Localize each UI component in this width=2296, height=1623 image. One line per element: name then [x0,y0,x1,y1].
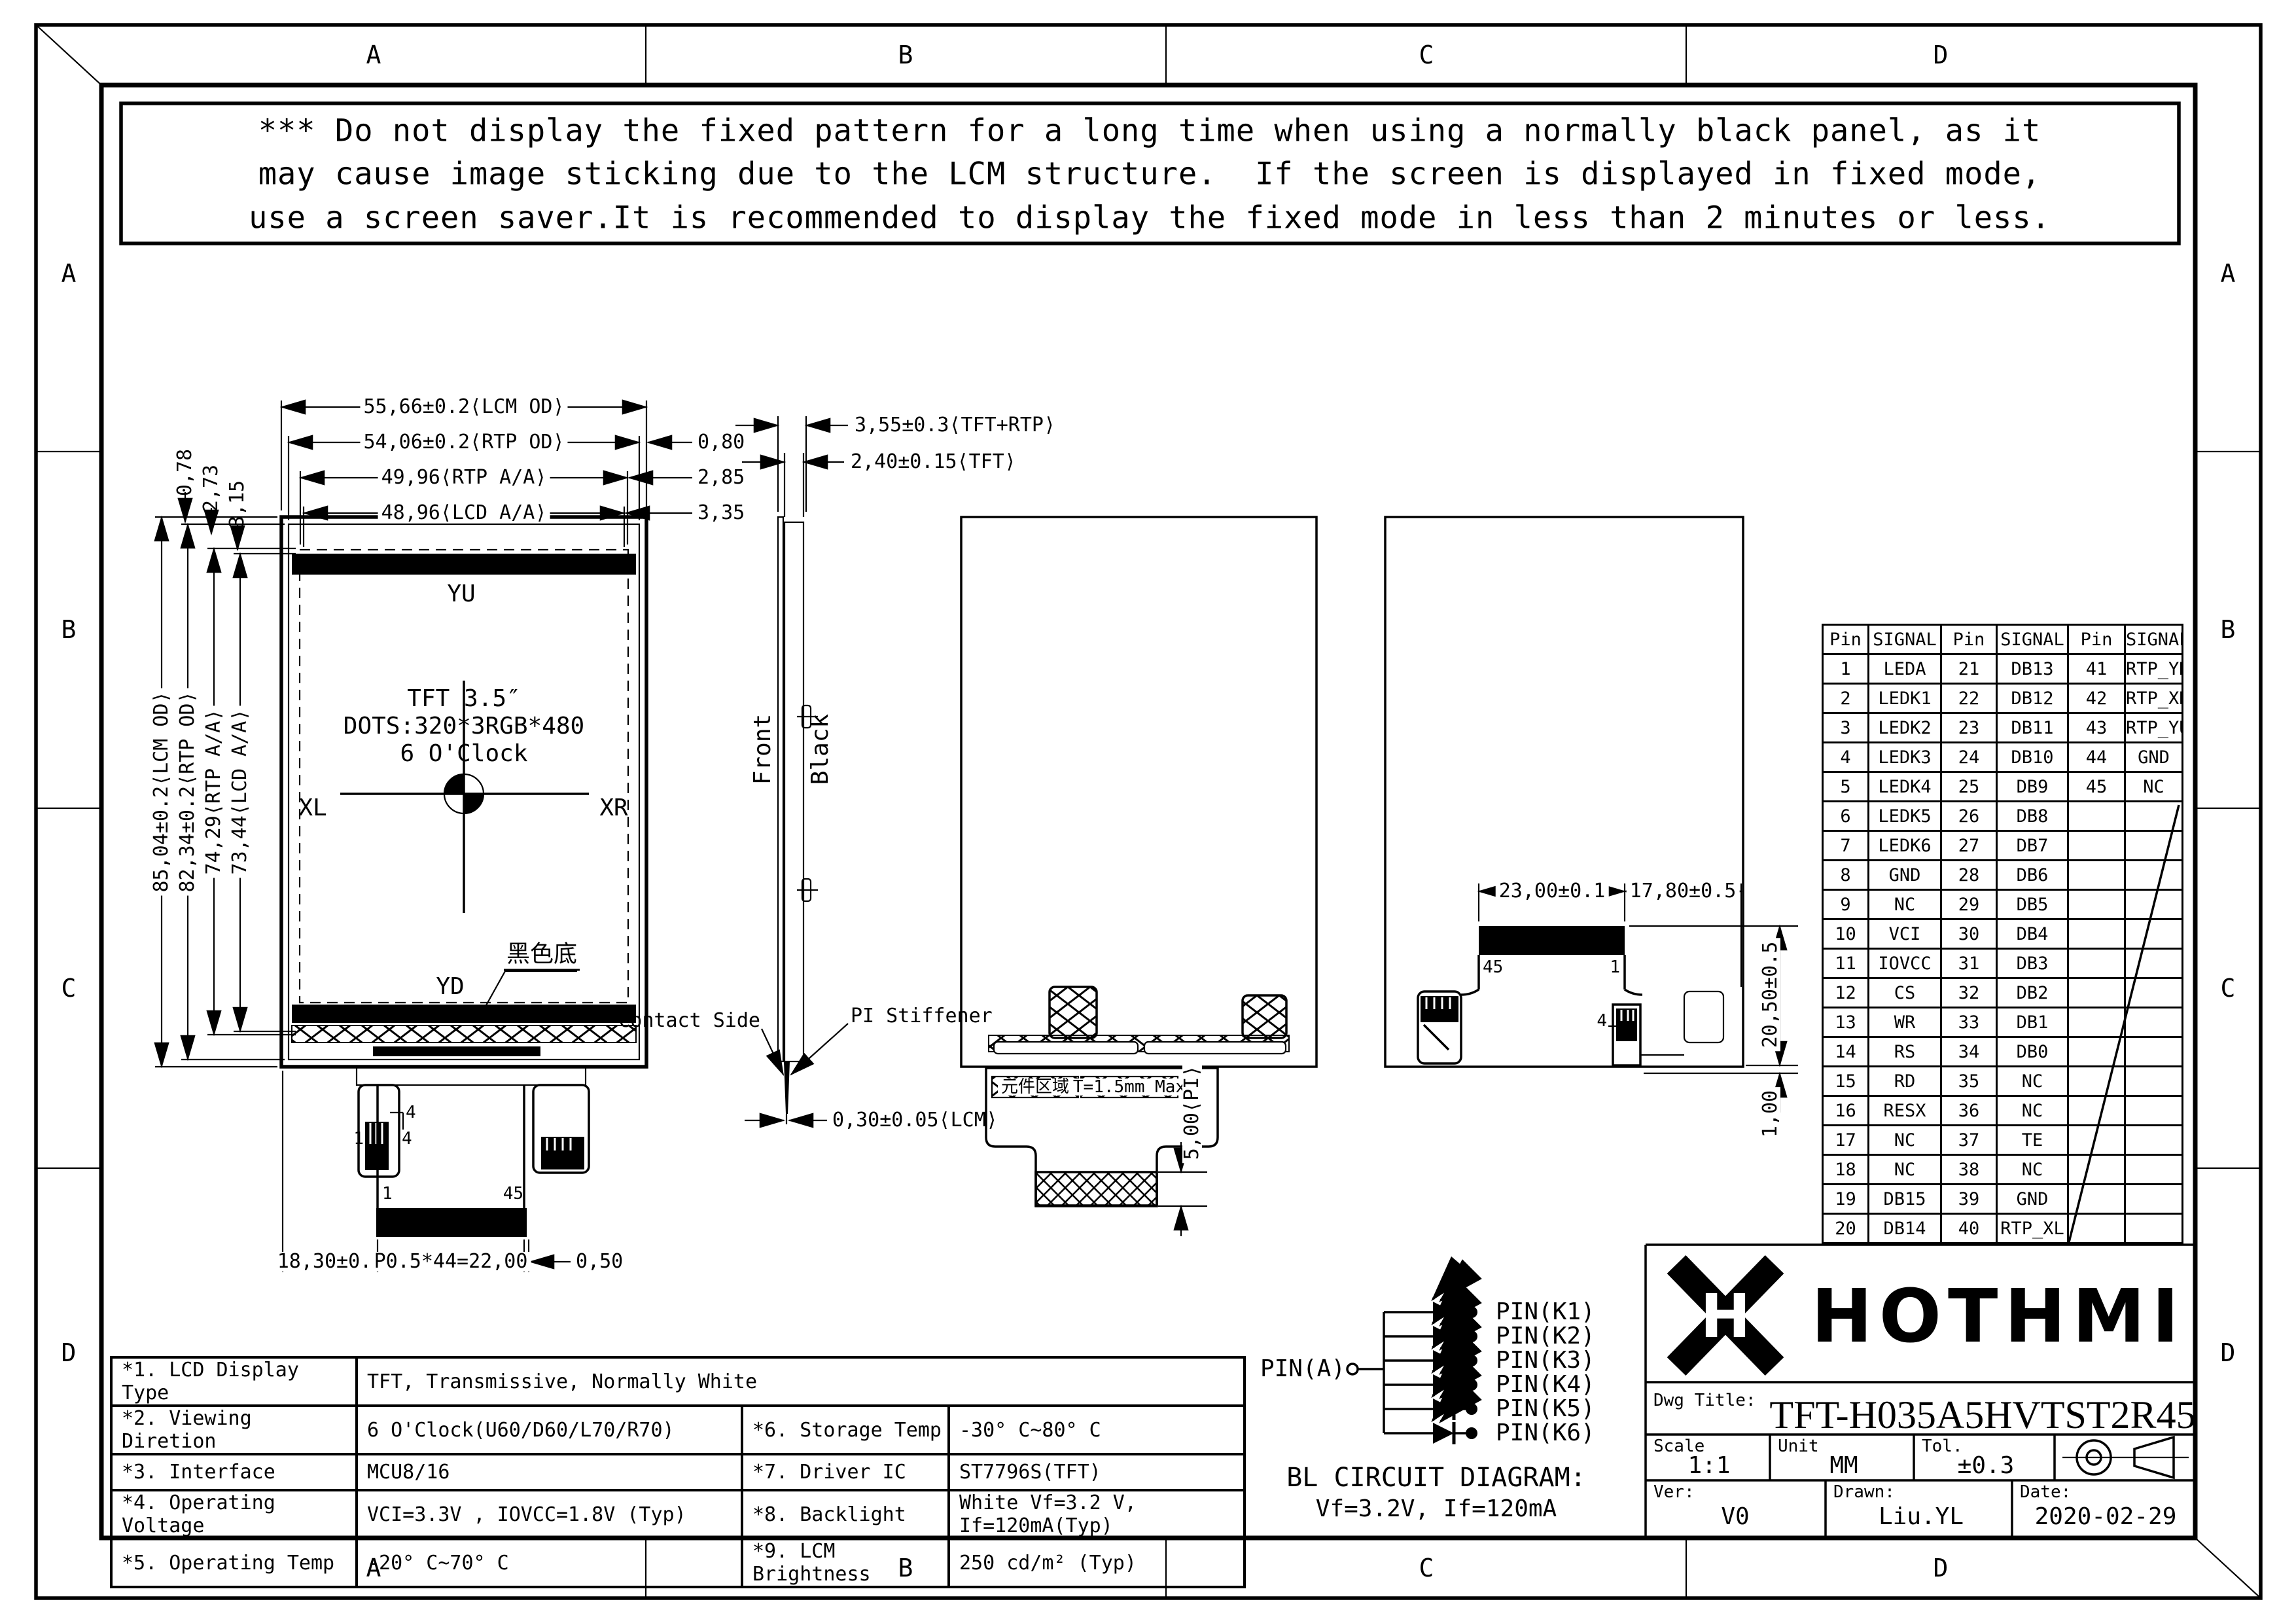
pin-cell: 36 [1941,1096,1997,1126]
pin-table-row: 4LEDK324DB1044GND [1823,743,2183,772]
signal-cell: DB3 [1997,949,2068,978]
unit-label: Unit [1778,1438,1819,1455]
pin-cell: 45 [2068,772,2125,802]
pin-cell: 23 [1941,713,1997,743]
pi-stiffener-label: PI Stiffener [851,1007,993,1026]
signal-cell [2125,890,2183,919]
signal-cell [2125,802,2183,831]
signal-cell [2125,1126,2183,1155]
spec-value: White Vf=3.2 V, If=120mA(Typ) [949,1490,1245,1539]
pin-cell: 35 [1941,1067,1997,1096]
ver-value: V0 [1721,1505,1749,1529]
signal-cell: LEDK1 [1869,684,1941,713]
spec-value: VCI=3.3V , IOVCC=1.8V (Typ) [357,1490,742,1539]
back-pin45-label: 45 [1483,959,1503,976]
signal-cell: DB12 [1997,684,2068,713]
pin-cell: 27 [1941,831,1997,861]
pin-cell [2068,1185,2125,1214]
spec-value: -30° C~80° C [949,1406,1245,1454]
pin-cell [2068,1067,2125,1096]
pin-table-row: 13WR33DB1 [1823,1008,2183,1037]
pin-cell: 38 [1941,1155,1997,1185]
zone-row-a-left: A [62,261,77,286]
spec-label: *2. Viewing Diretion [111,1406,357,1454]
pin-cell: 22 [1941,684,1997,713]
date-value: 2020-02-29 [2035,1505,2177,1529]
dim-offset-right-1: 0,80 [698,433,745,452]
dim-fpc-thickness: 0,30±0.05⟨LCM⟩ [832,1111,998,1130]
signal-cell: DB11 [1997,713,2068,743]
pin-cell: 33 [1941,1008,1997,1037]
pin-cell: 31 [1941,949,1997,978]
pin-table-row: 17NC37TE [1823,1126,2183,1155]
pin-table-row: 14RS34DB0 [1823,1037,2183,1067]
pin-col-header: Pin [1941,625,1997,654]
pin-cell: 32 [1941,978,1997,1008]
drawn-value: Liu.YL [1879,1505,1964,1529]
ver-label: Ver: [1653,1484,1695,1501]
signal-cell: DB1 [1997,1008,2068,1037]
dim-connector-width: 23,00±0.1 [1496,882,1609,901]
dwg-title-value: TFT-H035A5HVTST2R45 [1769,1395,2195,1435]
bl-circuit-drawing [1347,1290,1477,1444]
pin-table-row: 15RD35NC [1823,1067,2183,1096]
spec-label: *4. Operating Voltage [111,1490,357,1539]
pin-cell: 43 [2068,713,2125,743]
back-pin1-label: 1 [1610,959,1620,976]
zone-col-a-top: A [366,43,381,67]
signal-cell: TE [1997,1126,2068,1155]
pin-table-row: 7LEDK627DB7 [1823,831,2183,861]
dim-pi-length: 5,00⟨PI⟩ [1182,1062,1202,1164]
signal-col-header: SIGNAL [1869,625,1941,654]
signal-cell: LEDK4 [1869,772,1941,802]
panel-center-line-3: 6 O'Clock [400,742,527,766]
bl-cathode-label: PIN(K5) [1496,1397,1595,1421]
pin-cell: 5 [1823,772,1869,802]
spec-row-5: *5. Operating Temp -20° C~70° C *9. LCM … [111,1539,1245,1587]
bl-cathode-label: PIN(K3) [1496,1349,1595,1372]
bl-cathode-label: PIN(K6) [1496,1421,1595,1445]
pin-cell: 40 [1941,1214,1997,1243]
back-view-mid-drawing [961,517,1316,1236]
pin-cell [2068,890,2125,919]
pin-cell: 34 [1941,1037,1997,1067]
spec-label: *1. LCD Display Type [111,1357,357,1406]
signal-cell: IOVCC [1869,949,1941,978]
pin-cell: 28 [1941,861,1997,890]
signal-cell: DB10 [1997,743,2068,772]
zone-row-b-left: B [62,617,77,642]
signal-cell: DB0 [1997,1037,2068,1067]
spec-value: 250 cd/m² (Typ) [949,1539,1245,1587]
pin-cell: 29 [1941,890,1997,919]
pin-cell [2068,1126,2125,1155]
hothmi-logo-mark: H [1676,1264,1775,1366]
pin-cell: 17 [1823,1126,1869,1155]
pin-cell: 30 [1941,919,1997,949]
signal-col-header: SIGNAL [1997,625,2068,654]
dim-rtp-height: 82,34±0.2⟨RTP OD⟩ [178,688,198,895]
tol-value: ±0.3 [1958,1454,2015,1478]
panel-center-line-2: DOTS:320*3RGB*480 [344,715,584,738]
pin-cell: 13 [1823,1008,1869,1037]
signal-cell [2125,949,2183,978]
dim-thickness-total: 3,55±0.3⟨TFT+RTP⟩ [855,416,1055,435]
spec-label: *6. Storage Temp [742,1406,949,1454]
pin-cell [2068,1214,2125,1243]
zone-row-c-right: C [2221,976,2236,1001]
signal-cell: NC [1997,1067,2068,1096]
black-background-label: 黑色底 [504,943,580,971]
pin-cell [2068,1155,2125,1185]
pin-cell: 16 [1823,1096,1869,1126]
dim-lcd-aa-height: 73,44⟨LCD A/A⟩ [230,706,250,878]
warning-line-2: may cause image sticking due to the LCM … [258,159,2041,190]
drawn-label: Drawn: [1833,1484,1895,1501]
dim-lcd-aa-width: 48,96⟨LCD A/A⟩ [378,503,550,523]
signal-cell: DB14 [1869,1214,1941,1243]
signal-cell: RTP_YD [2125,654,2183,684]
pin-cell: 41 [2068,654,2125,684]
dim-offset-top-1: 0,78 [175,449,195,496]
panel-center-line-1: TFT 3.5″ [407,687,520,711]
dim-lcm-width: 55,66±0.2⟨LCM OD⟩ [360,397,567,417]
pin-table-row: 16RESX36NC [1823,1096,2183,1126]
bl-circuit-title: BL CIRCUIT DIAGRAM: [1286,1465,1586,1491]
pin-assignment-table: Pin SIGNAL Pin SIGNAL Pin SIGNAL 1LEDA21… [1822,624,2183,1244]
signal-cell: GND [1869,861,1941,890]
back-view-right-drawing [1385,517,1798,1113]
panel-side-label-yd: YD [436,975,464,999]
dim-rtp-aa-width: 49,96⟨RTP A/A⟩ [378,468,550,488]
projection-symbol-icon [2062,1437,2189,1478]
pin-cell: 19 [1823,1185,1869,1214]
signal-cell: NC [1869,1155,1941,1185]
pin-cell [2068,1096,2125,1126]
dim-offset-top-2: 2,73 [202,465,221,512]
zone-row-c-left: C [62,976,77,1001]
pin-cell [2068,831,2125,861]
signal-cell: RTP_YU [2125,713,2183,743]
pin-table-row: 20DB1440RTP_XL [1823,1214,2183,1243]
signal-cell: RS [1869,1037,1941,1067]
spec-row-4: *4. Operating Voltage VCI=3.3V , IOVCC=1… [111,1490,1245,1539]
spec-value: MCU8/16 [357,1454,742,1490]
zone-col-b-top: B [898,43,913,67]
bl-cathode-label: PIN(K1) [1496,1300,1595,1324]
pin-cell: 37 [1941,1126,1997,1155]
pin-cell: 18 [1823,1155,1869,1185]
dim-fpc-drop: 20,50±0.5 [1761,938,1780,1052]
zone-col-c-bottom: C [1419,1556,1434,1580]
pin-table-row: 11IOVCC31DB3 [1823,949,2183,978]
pin-cell: 2 [1823,684,1869,713]
signal-cell: DB5 [1997,890,2068,919]
fpc-pin4-label-a: 4 [406,1104,416,1121]
pin-cell [2068,802,2125,831]
pin-table-row: 2LEDK122DB1242RTP_XR [1823,684,2183,713]
fpc-pin1-label-b: 1 [353,1130,364,1147]
spec-row-3: *3. Interface MCU8/16 *7. Driver IC ST77… [111,1454,1245,1490]
bl-anode-label: PIN(A) [1260,1357,1345,1381]
spec-label: *8. Backlight [742,1490,949,1539]
signal-cell [2125,1185,2183,1214]
pin-col-header: Pin [2068,625,2125,654]
zone-row-b-right: B [2221,617,2236,642]
unit-value: MM [1829,1454,1858,1478]
spec-label: *5. Operating Temp [111,1539,357,1587]
contact-side-label: Contact Side [618,1011,760,1031]
signal-cell [2125,1067,2183,1096]
spec-value: -20° C~70° C [357,1539,742,1587]
pin-cell: 39 [1941,1185,1997,1214]
scale-value: 1:1 [1687,1454,1730,1478]
pin-table-header-row: Pin SIGNAL Pin SIGNAL Pin SIGNAL [1823,625,2183,654]
pin-cell [2068,978,2125,1008]
side-black-label: Black [809,714,832,785]
component-area-label: 元件区域 [998,1079,1072,1096]
pin-cell: 11 [1823,949,1869,978]
signal-cell [2125,1008,2183,1037]
panel-side-label-xl: XL [298,796,327,820]
signal-cell [2125,1096,2183,1126]
dwg-title-label: Dwg Title: [1653,1392,1756,1409]
pin-cell: 20 [1823,1214,1869,1243]
pin-table-row: 19DB1539GND [1823,1185,2183,1214]
dim-offset-top-3: 3,15 [228,480,247,527]
signal-cell: WR [1869,1008,1941,1037]
pin-table-row: 10VCI30DB4 [1823,919,2183,949]
pin-cell [2068,919,2125,949]
pin-cell: 1 [1823,654,1869,684]
signal-cell: RD [1869,1067,1941,1096]
spec-label: *9. LCM Brightness [742,1539,949,1587]
signal-cell [2125,1037,2183,1067]
zone-row-d-left: D [62,1340,77,1365]
signal-cell [2125,831,2183,861]
zone-col-d-top: D [1934,43,1949,67]
signal-cell [2125,861,2183,890]
zone-row-d-right: D [2221,1340,2236,1365]
pin-table-row: 12CS32DB2 [1823,978,2183,1008]
signal-cell: VCI [1869,919,1941,949]
pin-table-row: 8GND28DB6 [1823,861,2183,890]
signal-cell: NC [1869,890,1941,919]
signal-cell: DB13 [1997,654,2068,684]
signal-cell [2125,1214,2183,1243]
pin-table-row: 1LEDA21DB1341RTP_YD [1823,654,2183,684]
pin-cell: 10 [1823,919,1869,949]
pin-cell: 21 [1941,654,1997,684]
spec-label: *7. Driver IC [742,1454,949,1490]
spec-value: TFT, Transmissive, Normally White [357,1357,1245,1406]
signal-cell: LEDK3 [1869,743,1941,772]
pin-cell: 8 [1823,861,1869,890]
pin-cell: 15 [1823,1067,1869,1096]
pin-cell: 24 [1941,743,1997,772]
pin-cell: 14 [1823,1037,1869,1067]
signal-cell: RTP_XL [1997,1214,2068,1243]
signal-cell: LEDA [1869,654,1941,684]
fpc-pin1-label: 1 [382,1185,393,1202]
signal-cell: LEDK6 [1869,831,1941,861]
pin-table-row: 5LEDK425DB945NC [1823,772,2183,802]
signal-cell: LEDK5 [1869,802,1941,831]
max-thickness-label: T=1.5mm Max [1070,1079,1189,1096]
pin-cell: 3 [1823,713,1869,743]
signal-cell: DB7 [1997,831,2068,861]
pin-cell: 9 [1823,890,1869,919]
panel-side-label-yu: YU [447,582,475,606]
spec-table: *1. LCD Display Type TFT, Transmissive, … [110,1356,1246,1588]
pin-cell [2068,861,2125,890]
pin-cell: 4 [1823,743,1869,772]
signal-cell [2125,978,2183,1008]
signal-cell: GND [2125,743,2183,772]
pin-cell: 6 [1823,802,1869,831]
signal-cell: RTP_XR [2125,684,2183,713]
pin-cell: 7 [1823,831,1869,861]
signal-cell: NC [1997,1155,2068,1185]
pin-cell: 12 [1823,978,1869,1008]
signal-cell: LEDK2 [1869,713,1941,743]
dim-fpc-right: 0,50 [576,1252,623,1272]
pin-table-row: 6LEDK526DB8 [1823,802,2183,831]
signal-cell: NC [1869,1126,1941,1155]
back-pin4-label: 4 [1597,1012,1607,1029]
signal-cell: DB2 [1997,978,2068,1008]
dim-offset-right-2: 2,85 [698,468,745,488]
dim-fpc-pitch: P0.5*44=22,00 [371,1252,531,1272]
dim-rtp-width: 54,06±0.2⟨RTP OD⟩ [360,433,567,452]
pin-cell [2068,1037,2125,1067]
pin-col-header: Pin [1823,625,1869,654]
bl-circuit-subtitle: Vf=3.2V, If=120mA [1316,1497,1557,1521]
dim-connector-offset: 17,80±0.5 [1627,882,1740,901]
pin-table-row: 18NC38NC [1823,1155,2183,1185]
spec-value: ST7796S(TFT) [949,1454,1245,1490]
spec-row-2: *2. Viewing Diretion 6 O'Clock(U60/D60/L… [111,1406,1245,1454]
signal-cell: DB8 [1997,802,2068,831]
engineering-drawing-page: H A B C D A B C D A B C D A B C D *** Do… [0,0,2296,1623]
zone-row-a-right: A [2221,261,2236,286]
signal-cell: NC [1997,1096,2068,1126]
signal-cell [2125,1155,2183,1185]
dim-rtp-aa-height: 74,29⟨RTP A/A⟩ [204,706,224,878]
signal-cell: GND [1997,1185,2068,1214]
pin-cell: 25 [1941,772,1997,802]
pin-cell [2068,949,2125,978]
warning-line-3: use a screen saver.It is recommended to … [249,203,2051,234]
pin-cell [2068,1008,2125,1037]
signal-cell: DB9 [1997,772,2068,802]
dim-thickness-tft: 2,40±0.15⟨TFT⟩ [851,452,1016,472]
svg-text:H: H [1701,1281,1751,1351]
spec-value: 6 O'Clock(U60/D60/L70/R70) [357,1406,742,1454]
signal-cell: DB15 [1869,1185,1941,1214]
signal-cell: DB4 [1997,919,2068,949]
panel-side-label-xr: XR [599,796,627,820]
dim-lcm-height: 85,04±0.2⟨LCM OD⟩ [152,688,171,895]
signal-cell: DB6 [1997,861,2068,890]
signal-col-header: SIGNAL [2125,625,2183,654]
pin-cell: 26 [1941,802,1997,831]
signal-cell: NC [2125,772,2183,802]
tol-label: Tol. [1922,1438,1963,1455]
pin-cell: 42 [2068,684,2125,713]
signal-cell [2125,919,2183,949]
spec-label: *3. Interface [111,1454,357,1490]
side-front-label: Front [751,714,775,785]
bl-cathode-label: PIN(K4) [1496,1373,1595,1397]
signal-cell: RESX [1869,1096,1941,1126]
spec-row-1: *1. LCD Display Type TFT, Transmissive, … [111,1357,1245,1406]
fpc-pin4-label-b: 4 [402,1130,412,1147]
bl-cathode-label: PIN(K2) [1496,1325,1595,1348]
fpc-pin45-label: 45 [503,1185,523,1202]
dim-fpc-left: 18,30±0.5 [274,1252,387,1272]
warning-line-1: *** Do not display the fixed pattern for… [258,116,2041,147]
pin-table-row: 9NC29DB5 [1823,890,2183,919]
brand-name: HOTHMI [1811,1274,2185,1359]
dim-offset-right-3: 3,35 [698,503,745,523]
zone-col-c-top: C [1419,43,1434,67]
dim-fpc-overhang: 1,00 [1761,1087,1780,1141]
pin-cell: 44 [2068,743,2125,772]
date-label: Date: [2020,1484,2071,1501]
pin-table-body: 1LEDA21DB1341RTP_YD2LEDK122DB1242RTP_XR3… [1823,654,2183,1243]
signal-cell: CS [1869,978,1941,1008]
pin-table-row: 3LEDK223DB1143RTP_YU [1823,713,2183,743]
zone-col-d-bottom: D [1934,1556,1949,1580]
